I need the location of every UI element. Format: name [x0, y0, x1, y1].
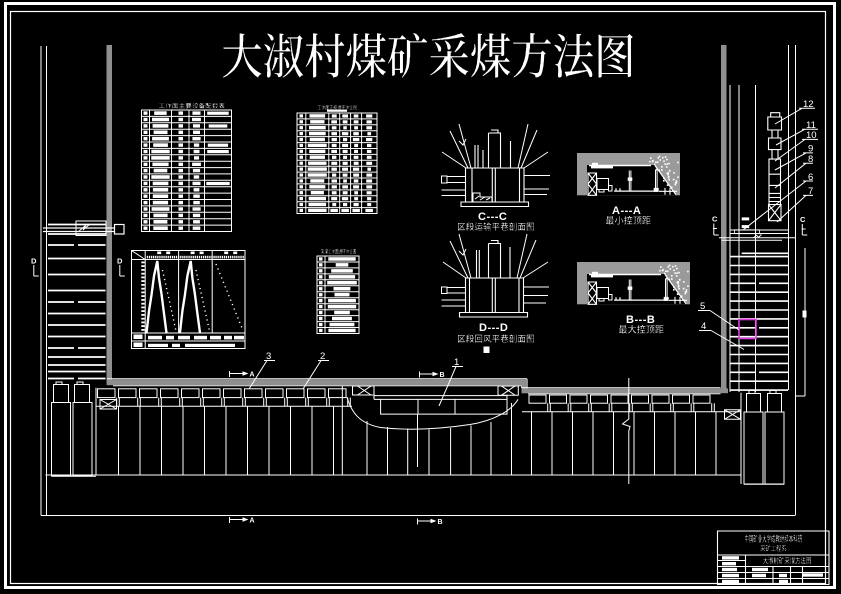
svg-text:B---B: B---B: [626, 314, 655, 326]
svg-text:A: A: [250, 372, 255, 379]
svg-text:D: D: [117, 257, 123, 266]
svg-text:B: B: [438, 519, 443, 526]
svg-text:B: B: [440, 372, 445, 379]
svg-text:D---D: D---D: [479, 322, 508, 334]
svg-text:C: C: [712, 215, 718, 224]
svg-text:A---A: A---A: [612, 205, 641, 217]
svg-text:C---C: C---C: [478, 211, 507, 223]
svg-text:A: A: [250, 518, 255, 525]
svg-text:C: C: [800, 215, 806, 224]
svg-text:D: D: [31, 257, 37, 266]
